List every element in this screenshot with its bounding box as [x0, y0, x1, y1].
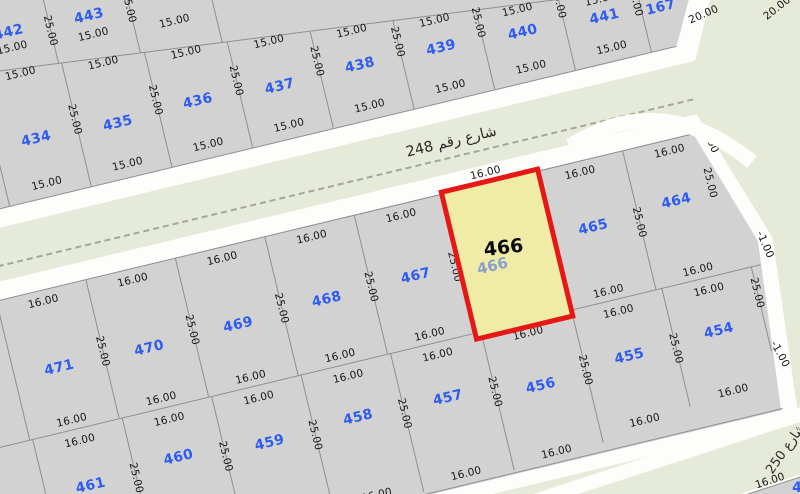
overlay-label: 4: [792, 480, 800, 494]
street-248-label: شارع رقم 248: [404, 123, 498, 160]
map-rotated-layer: شارع رقم 248 15.0015.0015.0025.0025.0015…: [0, 0, 800, 494]
dimension-label: 20.00: [761, 0, 793, 23]
parcel-466-selected-number: 466: [483, 235, 525, 261]
cadastral-map-canvas: شارع رقم 248 15.0015.0015.0025.0025.0015…: [0, 0, 800, 494]
